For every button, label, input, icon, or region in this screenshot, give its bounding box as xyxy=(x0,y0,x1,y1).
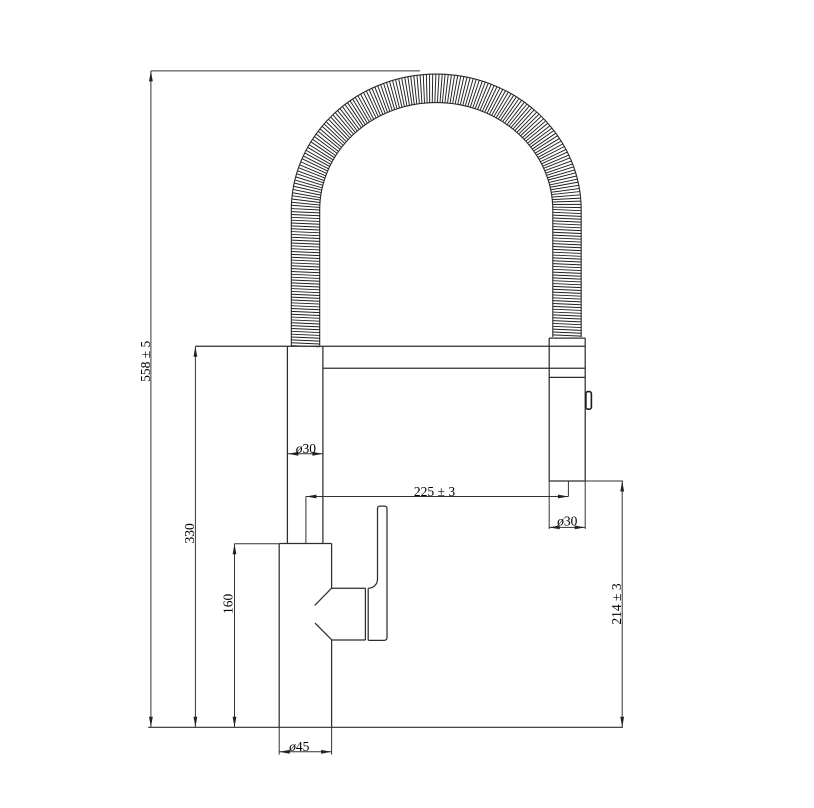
svg-text:214 ± 3: 214 ± 3 xyxy=(609,583,624,624)
svg-text:ø30: ø30 xyxy=(295,441,317,456)
svg-text:ø30: ø30 xyxy=(556,513,578,528)
svg-text:ø45: ø45 xyxy=(288,739,310,754)
svg-text:225 ± 3: 225 ± 3 xyxy=(414,484,455,499)
svg-text:330: 330 xyxy=(182,523,197,544)
svg-text:160: 160 xyxy=(220,594,235,615)
svg-text:558 ± 5: 558 ± 5 xyxy=(138,340,153,381)
